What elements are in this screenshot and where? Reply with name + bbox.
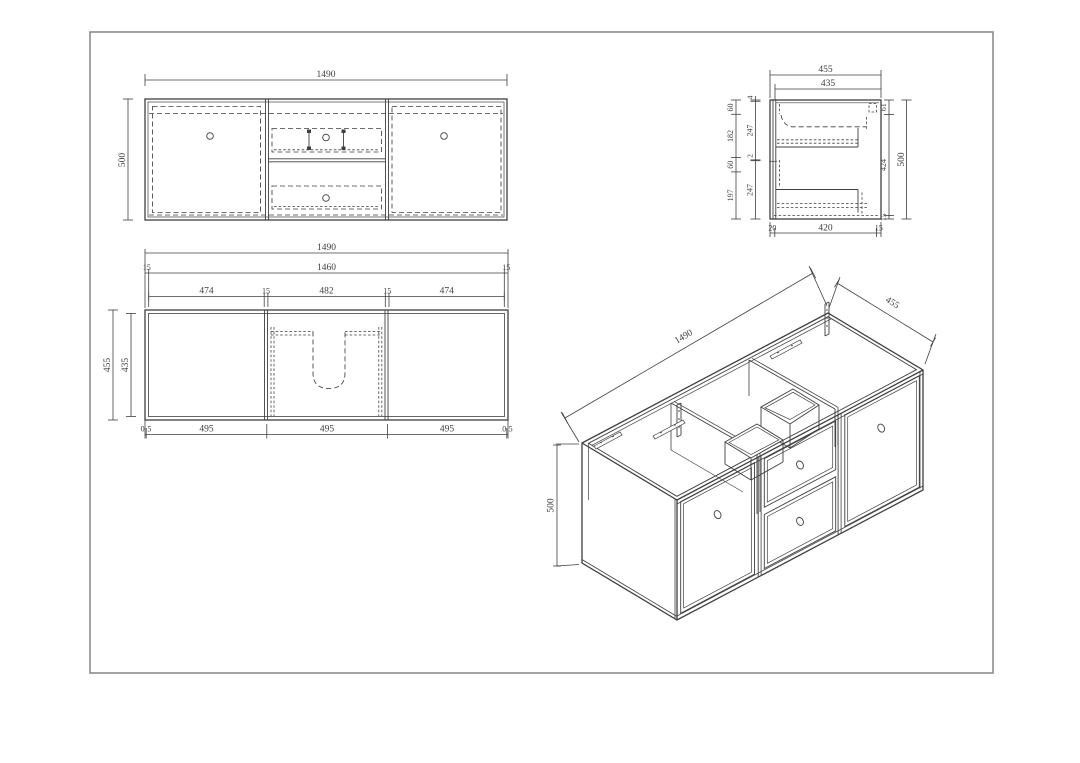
dim-side-width: 455 [818, 65, 833, 75]
dim-side-60a: 60 [726, 104, 735, 112]
dim-front-height: 500 [118, 153, 128, 168]
dim-side-182: 182 [726, 130, 735, 142]
plan-cabinet-body [145, 310, 508, 420]
dim-plan-474b: 474 [440, 287, 455, 297]
dim-plan-1490: 1490 [317, 243, 336, 253]
dim-plan-5r: 5 [509, 425, 513, 434]
dim-side-20: 20 [768, 224, 776, 233]
front-cabinet-body [145, 99, 507, 220]
drawing-page: 1490 500 [0, 0, 1080, 763]
dim-side-247a: 247 [746, 125, 755, 137]
dim-plan-455: 455 [103, 358, 113, 373]
dim-plan-474a: 474 [199, 287, 214, 297]
dim-plan-1460: 1460 [317, 263, 336, 273]
side-cabinet-body [770, 100, 881, 219]
dim-front-width: 1490 [317, 70, 336, 80]
dim-side-60b: 60 [726, 161, 735, 169]
dim-plan-495a: 495 [199, 425, 214, 435]
dim-plan-15l: 15 [143, 263, 151, 272]
dim-plan-15a: 15 [262, 287, 270, 296]
technical-drawing-canvas: 1490 500 [0, 0, 1080, 763]
dim-iso-height: 500 [547, 498, 557, 513]
dim-plan-482: 482 [319, 287, 334, 297]
dim-side-420: 420 [818, 224, 833, 234]
dim-plan-495b: 495 [320, 425, 335, 435]
dim-side-4: 4 [746, 95, 755, 99]
dim-plan-495c: 495 [440, 425, 455, 435]
dim-side-inner-width: 435 [821, 79, 836, 89]
dim-plan-0l: 0 [141, 425, 145, 434]
dim-plan-15r: 15 [502, 263, 510, 272]
dim-side-15b: 15 [875, 224, 883, 233]
dim-plan-0r: 0 [502, 425, 506, 434]
dim-side-2: 2 [746, 154, 755, 158]
dim-side-500: 500 [897, 152, 907, 167]
dim-plan-5l: 5 [147, 425, 151, 434]
dim-side-197: 197 [726, 189, 735, 201]
dim-plan-15b: 15 [383, 287, 391, 296]
dim-side-247b: 247 [746, 184, 755, 196]
dim-plan-435: 435 [121, 358, 131, 373]
